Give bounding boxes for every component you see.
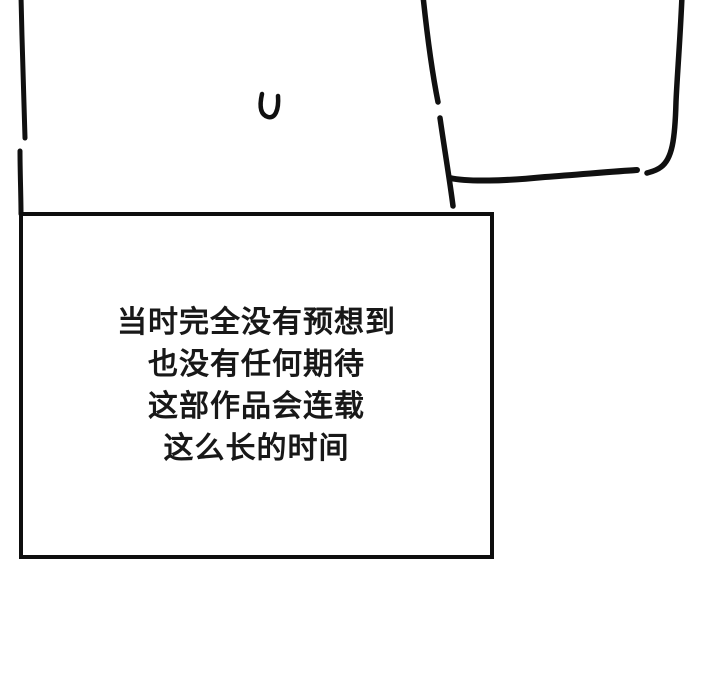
- caption-line-1: 当时完全没有预想到: [117, 302, 396, 344]
- left-panel-border-stroke-lower: [20, 151, 21, 214]
- panel-bottom-stroke: [450, 170, 637, 181]
- caption-line-3: 这部作品会连载: [148, 386, 365, 428]
- panel-left-slant-stroke-upper: [423, 0, 438, 102]
- caption-line-2: 也没有任何期待: [148, 344, 365, 386]
- caption-box: 当时完全没有预想到 也没有任何期待 这部作品会连载 这么长的时间: [19, 212, 494, 559]
- left-panel-border-stroke-upper: [21, 0, 25, 138]
- caption-line-4: 这么长的时间: [164, 428, 350, 470]
- panel-left-slant-stroke-lower: [440, 118, 453, 206]
- u-mark-icon: [261, 94, 279, 117]
- comic-page: 当时完全没有预想到 也没有任何期待 这部作品会连载 这么长的时间: [0, 0, 720, 700]
- panel-right-stroke: [647, 0, 682, 173]
